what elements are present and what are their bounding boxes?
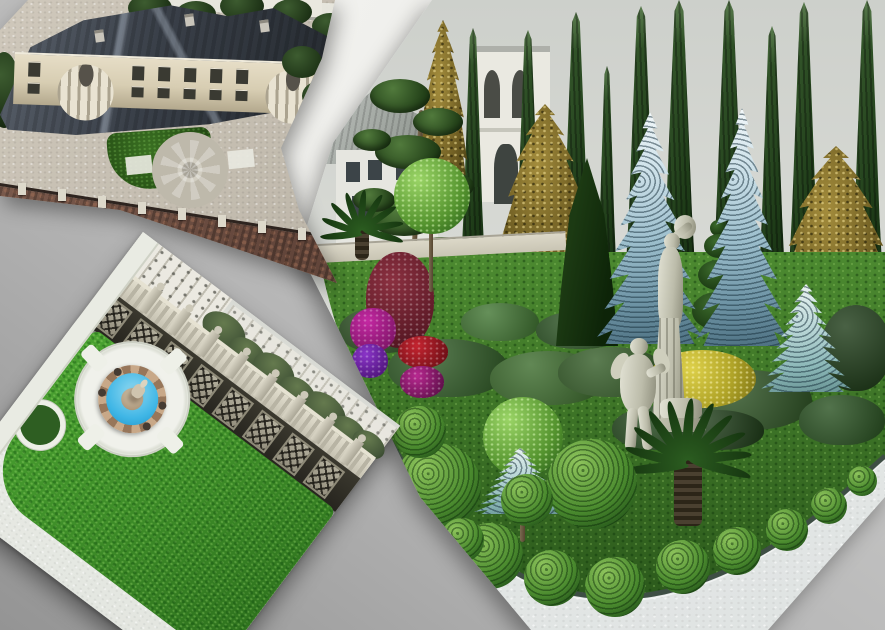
mansion-window [28, 61, 41, 76]
fence-post [98, 196, 106, 208]
mansion-window [132, 65, 145, 80]
mansion-window [27, 82, 39, 93]
mansion-window [183, 88, 195, 99]
circle-approach [227, 149, 255, 170]
mansion-window [209, 89, 221, 100]
mansion-window [131, 86, 143, 97]
fence-post [178, 208, 186, 220]
mansion-window [339, 93, 351, 104]
parterre-pattern [160, 140, 220, 200]
fence-post [58, 189, 66, 201]
mansion-lawn [287, 119, 388, 183]
fence-post [218, 215, 226, 227]
mansion-window [210, 68, 223, 83]
mansion-window [235, 90, 247, 101]
parterre-circle [152, 132, 228, 208]
panel-mansion-aerial [0, 0, 420, 330]
mansion-tree [282, 46, 322, 78]
collage-stage [0, 0, 885, 630]
fence-post [298, 228, 306, 240]
mansion-window [236, 69, 249, 84]
mansion-window [184, 67, 197, 82]
fence-post [258, 221, 266, 233]
mansion-tree [302, 81, 338, 111]
mansion-window [340, 72, 353, 87]
fence-post [338, 234, 346, 246]
mansion-portico [265, 69, 321, 125]
mansion-chimney [184, 13, 195, 26]
mansion-window [157, 87, 169, 98]
fence-post [138, 202, 146, 214]
fence-post [18, 183, 26, 195]
mansion-tree [314, 116, 346, 144]
mansion-chimney [94, 29, 105, 42]
circle-approach [125, 155, 153, 176]
mansion-chimney [259, 19, 270, 32]
mansion-window [158, 66, 171, 81]
